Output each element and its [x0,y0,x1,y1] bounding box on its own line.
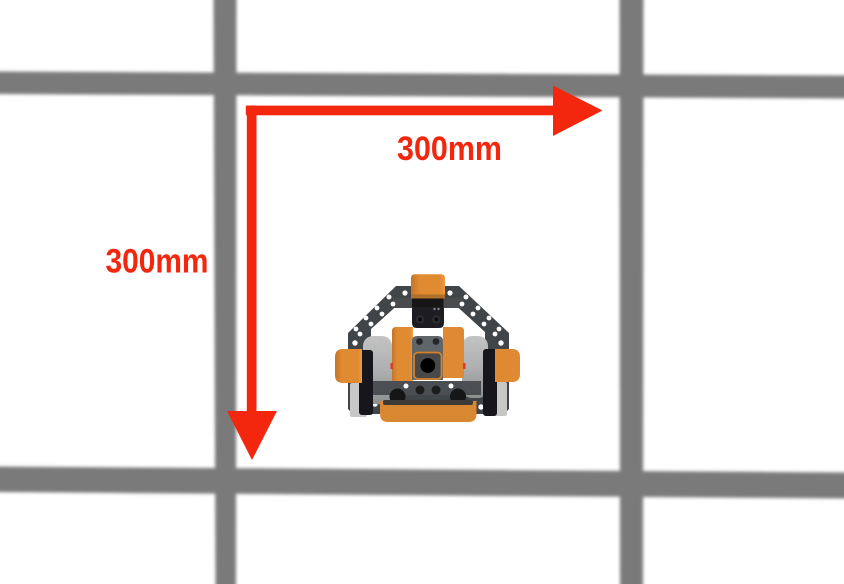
svg-text:300mm: 300mm [106,242,209,280]
svg-text:300mm: 300mm [397,130,502,168]
